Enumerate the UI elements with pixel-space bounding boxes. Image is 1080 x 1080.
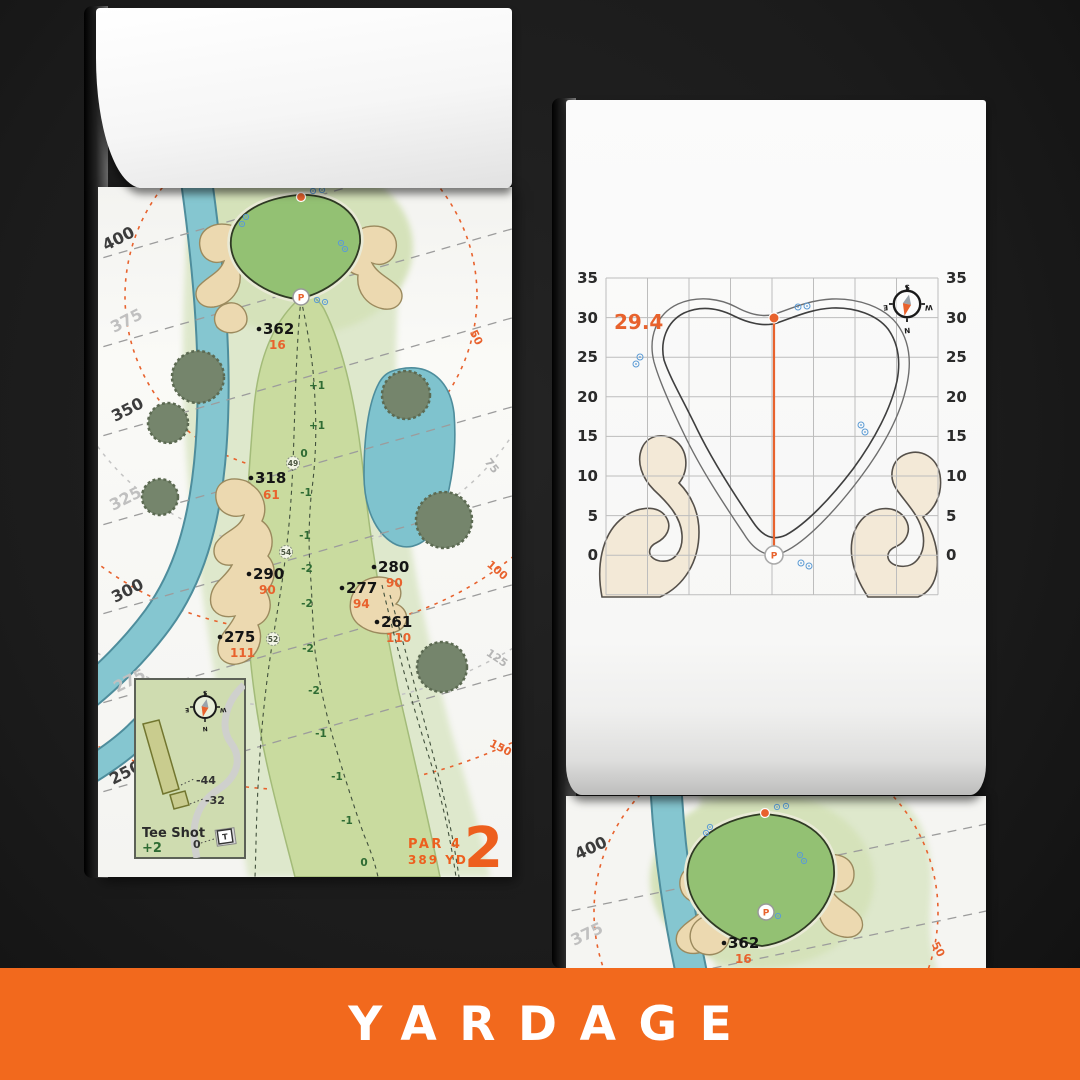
inset-score: +2 [142,841,162,856]
carry-sub: 16 [735,952,752,966]
depth-line [769,313,779,549]
carry-main: 362 [263,320,294,338]
waypoint-value: 52 [268,635,278,644]
carry-main: 318 [255,469,286,487]
arc-label: 150 [487,737,512,759]
axis-value: 10 [946,467,967,485]
carry-sub: 90 [386,576,403,590]
hole-map-svg: 49 54 52 +1 +1 0 -1 -1 -2 -2 -2 -2 -1 -1… [98,187,512,877]
arc-label: 50 [467,328,486,348]
inset-tee-shot: -44 -32 Tee Shot +2 0 T S [135,679,245,858]
compass-e: E [185,706,190,713]
arc-label: 125 [484,646,510,670]
slope-value: 0 [300,448,307,460]
carry-main: 280 [378,558,409,576]
slope-value: -1 [300,487,312,499]
axis-value: 20 [946,388,967,406]
axis-value: 20 [577,388,598,406]
axis-value: 5 [588,507,598,525]
slope-value: -1 [299,530,311,542]
axis-value: 30 [577,309,598,327]
banner-title: YARDAGE [326,997,755,1052]
slope-value: -1 [315,728,327,740]
axis-value: 10 [577,467,598,485]
arc-labels: 50 75 100 125 150 [467,328,512,759]
axis-value: 35 [946,269,967,287]
pin-marker: P [293,289,309,305]
pin-label: P [763,909,770,919]
axis-value: 30 [946,309,967,327]
compass-n: N [904,326,911,335]
axis-labels-right: 35 30 25 20 15 10 5 0 [946,269,967,564]
axis-value: 35 [577,269,598,287]
slope-value: -2 [308,685,320,697]
tee-box-icon: T [215,828,236,846]
slope-value: 0 [360,857,367,869]
axis-value: 25 [946,348,967,366]
pin-label: P [771,552,778,562]
back-edge-dot [297,193,306,202]
axis-value: 15 [946,427,967,445]
depth-measurement: 29.4 [614,310,663,334]
waypoint-value: 54 [281,548,291,557]
inset-zero: 0 [193,838,201,851]
product-scene: 49 54 52 +1 +1 0 -1 -1 -2 -2 -2 -2 -1 -1… [0,0,1080,1080]
compass-e: E [883,303,889,312]
axis-value: 0 [946,546,956,564]
yardage-label: 350 [108,393,146,425]
yardage-label: 325 [106,482,144,514]
pin-marker: P [758,904,774,920]
carry-sub: 94 [353,597,370,611]
axis-value: 15 [577,427,598,445]
compass-s: S [904,283,910,292]
green-chart-svg: 35 30 25 20 15 10 5 0 35 30 25 20 15 10 … [566,100,986,795]
par-label: PAR 4 [408,837,462,852]
yardage-label: 400 [572,832,610,863]
slope-value: -1 [341,815,353,827]
pin-marker: P [765,546,783,564]
carry-sub: 16 [269,338,286,352]
carry-main: 275 [224,628,255,646]
carry-sub: 110 [386,631,411,645]
bunkers [600,436,941,597]
carry-main: 261 [381,613,412,631]
slope-value: +1 [309,380,325,392]
compass-w: W [219,706,227,714]
carry-main: 277 [346,579,377,597]
slope-value: -2 [301,598,313,610]
slope-value: -1 [331,771,343,783]
carry-sub: 111 [230,646,255,660]
yardage-banner: YARDAGE [0,968,1080,1080]
yardage-label: 375 [568,918,606,949]
carry-main: 290 [253,565,284,583]
yardage-label: 375 [107,304,145,336]
hole-map-page: 49 54 52 +1 +1 0 -1 -1 -2 -2 -2 -2 -1 -1… [98,187,512,877]
next-hole-page: P 400 375 362 16 50 [566,796,986,970]
carry-sub: 90 [259,583,276,597]
arc-label: 75 [482,456,502,476]
tee-offset: -44 [196,774,216,787]
carry-sub: 61 [263,488,280,502]
yardage-total: 389 YD [408,853,468,867]
slope-value: -2 [302,643,314,655]
carry-main: 362 [728,934,759,952]
axis-value: 0 [588,546,598,564]
next-hole-svg: P 400 375 362 16 50 [566,796,986,970]
axis-labels-left: 35 30 25 20 15 10 5 0 [577,269,598,564]
yardage-label: 300 [108,574,146,606]
tee-offset: -32 [205,794,225,807]
green-chart-page: 35 30 25 20 15 10 5 0 35 30 25 20 15 10 … [566,100,986,795]
back-edge-dot [761,809,770,818]
yardage-labels: 400 375 [568,832,610,949]
hole-number: 2 [464,816,503,877]
axis-value: 5 [946,507,956,525]
axis-value: 25 [577,348,598,366]
pin-label: P [298,294,305,304]
slope-value: -2 [301,563,313,575]
waypoint-value: 49 [288,459,298,468]
compass-n: N [202,725,208,732]
slope-value: +1 [309,420,325,432]
compass-s: S [203,689,208,696]
compass-w: W [924,303,933,313]
compass-icon: S W N E [883,283,933,336]
flipped-page-curl [96,8,512,188]
yardage-label: 400 [99,222,137,254]
